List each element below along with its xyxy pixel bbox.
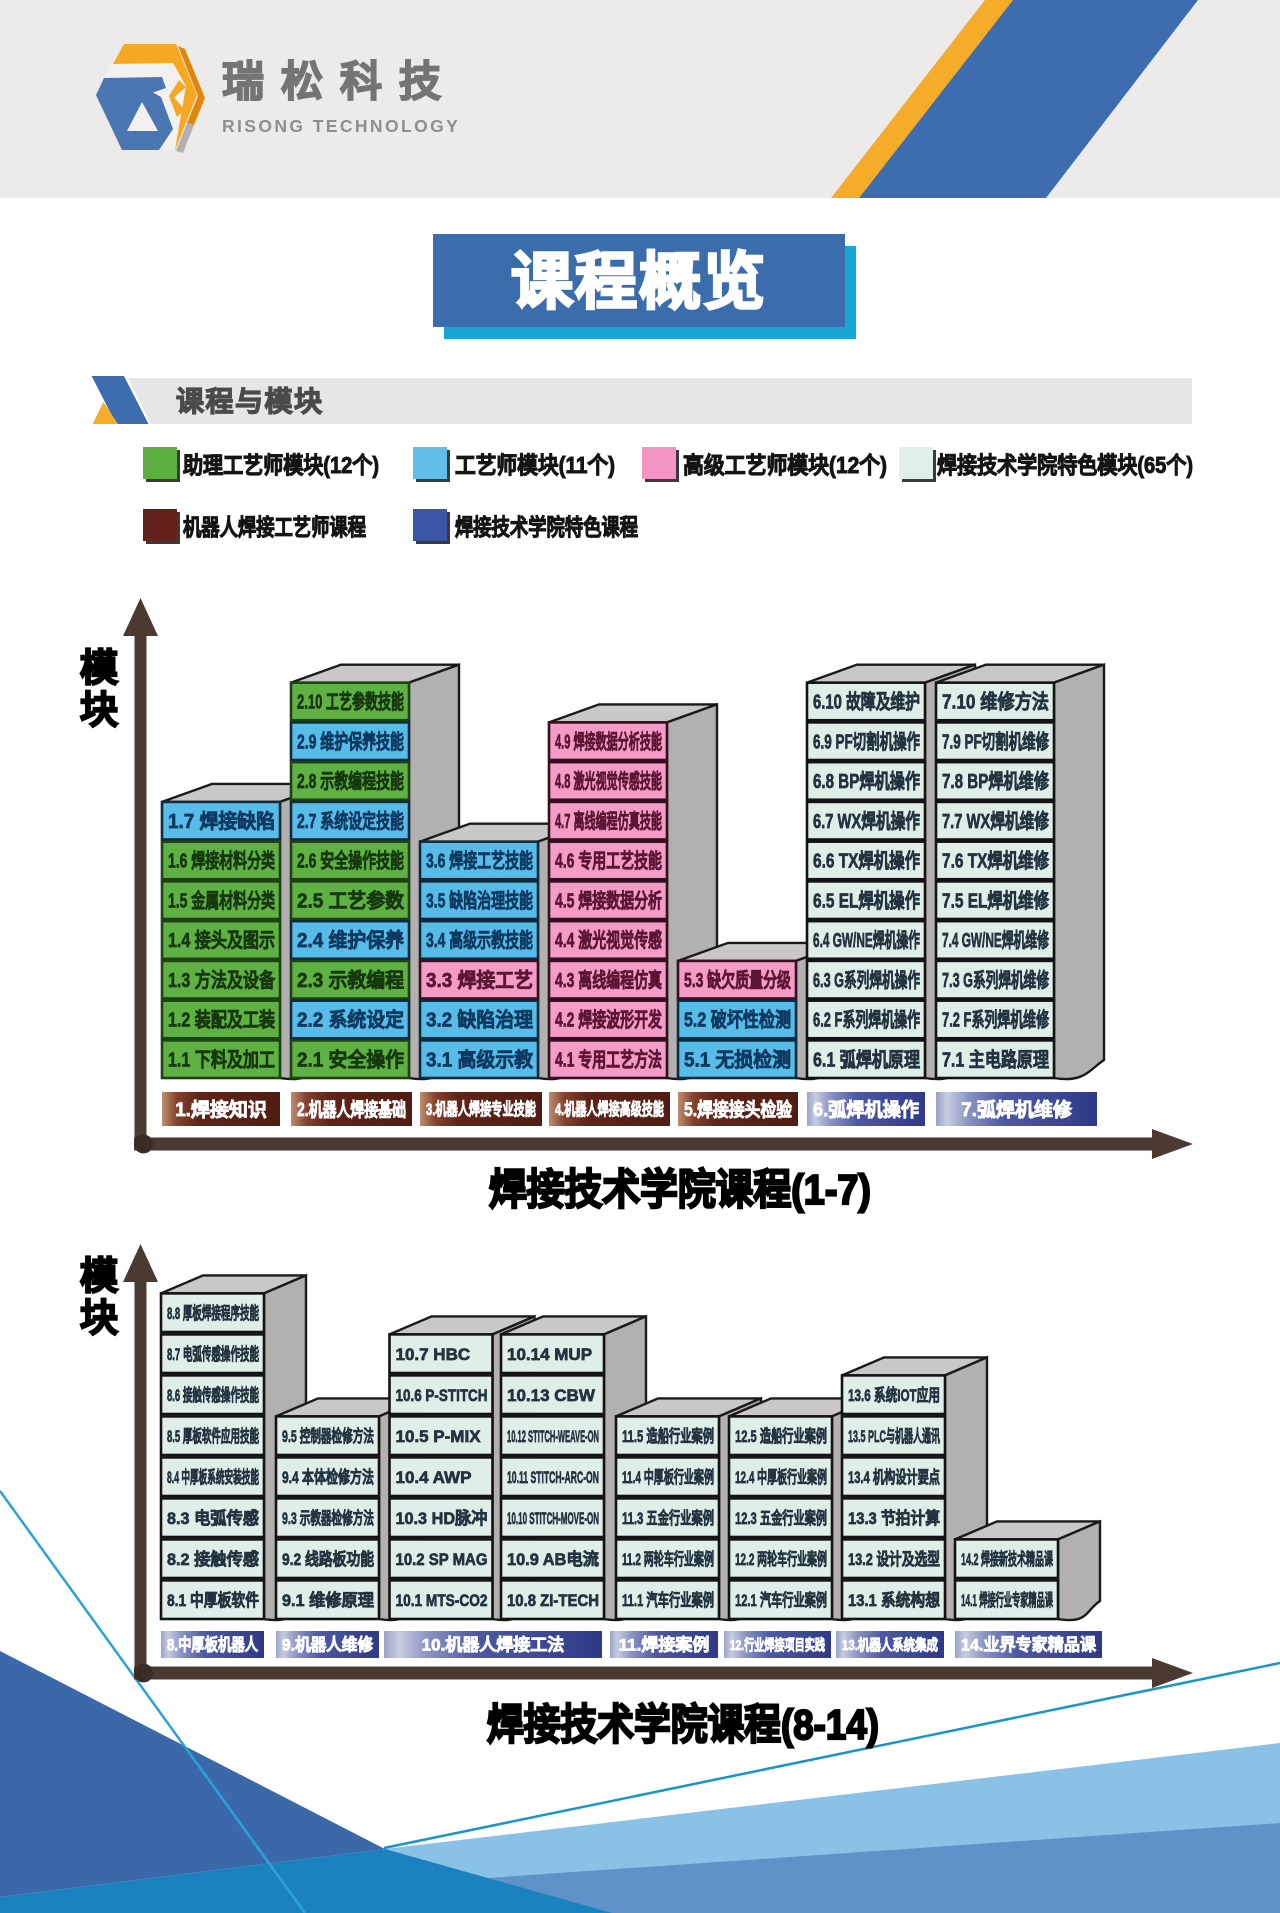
svg-text:9.5 控制器检修方法: 9.5 控制器检修方法 (282, 1426, 374, 1446)
svg-text:课程与模块: 课程与模块 (176, 386, 324, 417)
svg-text:课程概览: 课程概览 (511, 248, 767, 317)
svg-text:9.2 线路板功能: 9.2 线路板功能 (282, 1549, 374, 1569)
svg-text:8.3 电弧传感: 8.3 电弧传感 (167, 1508, 259, 1528)
svg-text:6.5 EL焊机操作: 6.5 EL焊机操作 (813, 888, 920, 912)
svg-text:2.10 工艺参数技能: 2.10 工艺参数技能 (297, 690, 404, 714)
svg-text:10.机器人焊接工法: 10.机器人焊接工法 (422, 1635, 565, 1655)
svg-text:4.8 激光视觉传感技能: 4.8 激光视觉传感技能 (555, 769, 662, 793)
svg-text:11.4 中厚板行业案例: 11.4 中厚板行业案例 (622, 1467, 714, 1487)
svg-text:10.11 STITCH-ARC-ON: 10.11 STITCH-ARC-ON (507, 1468, 599, 1487)
svg-text:6.10 故障及维护: 6.10 故障及维护 (813, 690, 920, 714)
svg-text:13.3 节拍计算: 13.3 节拍计算 (848, 1508, 940, 1528)
svg-text:12.3 五金行业案例: 12.3 五金行业案例 (735, 1508, 827, 1528)
svg-text:6.8 BP焊机操作: 6.8 BP焊机操作 (813, 769, 920, 793)
svg-text:10.10 STITCH-MOVE-ON: 10.10 STITCH-MOVE-ON (507, 1509, 599, 1528)
svg-text:4.1 专用工艺方法: 4.1 专用工艺方法 (555, 1047, 662, 1071)
svg-text:4.机器人焊接高级技能: 4.机器人焊接高级技能 (555, 1099, 664, 1119)
svg-text:3.5 缺陷治理技能: 3.5 缺陷治理技能 (426, 888, 533, 912)
svg-text:1.1 下料及加工: 1.1 下料及加工 (168, 1048, 275, 1071)
svg-text:6.弧焊机操作: 6.弧焊机操作 (813, 1098, 919, 1121)
svg-text:8.7 电弧传感操作技能: 8.7 电弧传感操作技能 (167, 1344, 259, 1364)
svg-text:6.3 G系列焊机操作: 6.3 G系列焊机操作 (813, 968, 920, 992)
svg-text:7.7 WX焊机维修: 7.7 WX焊机维修 (942, 809, 1050, 833)
svg-text:8.8 厚板焊接程序技能: 8.8 厚板焊接程序技能 (167, 1303, 259, 1323)
svg-text:12.4 中厚板行业案例: 12.4 中厚板行业案例 (735, 1467, 827, 1487)
svg-text:10.5 P-MIX: 10.5 P-MIX (396, 1427, 482, 1446)
svg-text:5.1 无损检测: 5.1 无损检测 (684, 1047, 791, 1071)
svg-text:6.4 GW/NE焊机操作: 6.4 GW/NE焊机操作 (813, 928, 920, 952)
svg-text:1.3 方法及设备: 1.3 方法及设备 (168, 968, 276, 992)
svg-text:1.2 装配及工装: 1.2 装配及工装 (168, 1008, 275, 1032)
svg-text:8.4 中厚板系统安装技能: 8.4 中厚板系统安装技能 (167, 1467, 259, 1487)
svg-text:7.9 PF切割机维修: 7.9 PF切割机维修 (942, 729, 1050, 753)
svg-text:块: 块 (80, 1298, 118, 1340)
svg-text:2.1 安全操作: 2.1 安全操作 (297, 1047, 404, 1071)
svg-text:块: 块 (80, 690, 118, 732)
svg-text:1.4 接头及图示: 1.4 接头及图示 (168, 929, 275, 952)
svg-text:10.4 AWP: 10.4 AWP (396, 1468, 472, 1487)
svg-text:2.9 维护保养技能: 2.9 维护保养技能 (297, 729, 404, 753)
svg-text:8.1 中厚板软件: 8.1 中厚板软件 (167, 1590, 259, 1610)
svg-text:7.1 主电路原理: 7.1 主电路原理 (942, 1047, 1049, 1071)
svg-text:6.1 弧焊机原理: 6.1 弧焊机原理 (813, 1047, 920, 1071)
svg-text:11.5 造船行业案例: 11.5 造船行业案例 (622, 1426, 714, 1446)
svg-text:8.6 接触传感操作技能: 8.6 接触传感操作技能 (167, 1385, 259, 1405)
svg-text:8.5 厚板软件应用技能: 8.5 厚板软件应用技能 (167, 1426, 259, 1446)
svg-text:10.2 SP MAG: 10.2 SP MAG (396, 1550, 488, 1569)
svg-text:10.8 ZI-TECH: 10.8 ZI-TECH (507, 1591, 599, 1610)
svg-text:1.6 焊接材料分类: 1.6 焊接材料分类 (168, 849, 275, 873)
svg-text:6.7 WX焊机操作: 6.7 WX焊机操作 (813, 809, 920, 833)
svg-text:工艺师模块(11个): 工艺师模块(11个) (455, 452, 615, 478)
svg-text:4.3 离线编程仿真: 4.3 离线编程仿真 (555, 968, 662, 992)
svg-text:2.2 系统设定: 2.2 系统设定 (297, 1008, 404, 1032)
svg-text:10.3 HD脉冲: 10.3 HD脉冲 (396, 1508, 488, 1528)
svg-text:9.机器人维修: 9.机器人维修 (282, 1635, 374, 1655)
svg-text:5.焊接接头检验: 5.焊接接头检验 (684, 1098, 793, 1121)
svg-text:11.2 两轮车行业案例: 11.2 两轮车行业案例 (622, 1549, 714, 1569)
svg-text:4.6 专用工艺技能: 4.6 专用工艺技能 (555, 849, 662, 873)
svg-text:12.5 造船行业案例: 12.5 造船行业案例 (735, 1426, 827, 1446)
svg-text:模: 模 (80, 648, 118, 690)
svg-text:10.13 CBW: 10.13 CBW (507, 1386, 596, 1405)
svg-text:5.2 破坏性检测: 5.2 破坏性检测 (684, 1008, 791, 1032)
svg-text:2.8 示教编程技能: 2.8 示教编程技能 (297, 769, 404, 793)
svg-text:10.9 AB电流: 10.9 AB电流 (507, 1549, 599, 1569)
svg-text:10.6 P-STITCH: 10.6 P-STITCH (396, 1386, 488, 1405)
svg-text:12.2 两轮车行业案例: 12.2 两轮车行业案例 (735, 1549, 827, 1569)
svg-text:3.6 焊接工艺技能: 3.6 焊接工艺技能 (426, 849, 533, 873)
svg-text:1.焊接知识: 1.焊接知识 (175, 1098, 267, 1121)
svg-text:2.3 示教编程: 2.3 示教编程 (297, 968, 404, 992)
svg-text:14.业界专家精品课: 14.业界专家精品课 (961, 1635, 1097, 1655)
svg-text:焊接技术学院课程(8-14): 焊接技术学院课程(8-14) (487, 1701, 879, 1748)
svg-text:9.1 维修原理: 9.1 维修原理 (282, 1590, 374, 1610)
svg-text:7.6 TX焊机维修: 7.6 TX焊机维修 (942, 849, 1050, 873)
svg-text:14.2 焊接新技术精品课: 14.2 焊接新技术精品课 (961, 1549, 1054, 1569)
svg-text:7.2 F系列焊机维修: 7.2 F系列焊机维修 (942, 1008, 1050, 1032)
svg-text:7.3 G系列焊机维修: 7.3 G系列焊机维修 (942, 968, 1050, 992)
svg-text:2.机器人焊接基础: 2.机器人焊接基础 (297, 1098, 406, 1121)
svg-text:2.4 维护保养: 2.4 维护保养 (297, 928, 404, 952)
svg-text:焊接技术学院特色模块(65个): 焊接技术学院特色模块(65个) (937, 452, 1193, 478)
svg-text:机器人焊接工艺师课程: 机器人焊接工艺师课程 (183, 514, 366, 540)
svg-text:4.4 激光视觉传感: 4.4 激光视觉传感 (555, 928, 662, 952)
svg-text:4.5 焊接数据分析: 4.5 焊接数据分析 (555, 888, 662, 912)
svg-text:10.14 MUP: 10.14 MUP (507, 1345, 592, 1364)
svg-text:3.2 缺陷治理: 3.2 缺陷治理 (426, 1008, 533, 1032)
svg-text:焊接技术学院课程(1-7): 焊接技术学院课程(1-7) (489, 1166, 871, 1213)
svg-text:13.机器人系统集成: 13.机器人系统集成 (842, 1636, 938, 1654)
svg-text:4.9 焊接数据分析技能: 4.9 焊接数据分析技能 (555, 729, 662, 753)
svg-text:6.6 TX焊机操作: 6.6 TX焊机操作 (813, 849, 920, 873)
svg-text:3.3 焊接工艺: 3.3 焊接工艺 (426, 968, 533, 992)
svg-text:4.7 离线编程仿真技能: 4.7 离线编程仿真技能 (555, 809, 662, 833)
svg-text:高级工艺师模块(12个): 高级工艺师模块(12个) (683, 452, 887, 478)
svg-text:9.4 本体检修方法: 9.4 本体检修方法 (282, 1467, 374, 1487)
svg-text:10.12 STITCH-WEAVE-ON: 10.12 STITCH-WEAVE-ON (507, 1427, 599, 1446)
svg-text:13.4 机构设计要点: 13.4 机构设计要点 (848, 1467, 940, 1487)
svg-text:11.焊接案例: 11.焊接案例 (619, 1635, 710, 1655)
svg-text:6.9 PF切割机操作: 6.9 PF切割机操作 (813, 729, 920, 753)
svg-text:助理工艺师模块(12个): 助理工艺师模块(12个) (183, 452, 379, 478)
svg-text:2.5 工艺参数: 2.5 工艺参数 (297, 888, 405, 912)
svg-text:13.5 PLC与机器人通讯: 13.5 PLC与机器人通讯 (848, 1426, 940, 1446)
svg-text:13.1 系统构想: 13.1 系统构想 (848, 1590, 940, 1610)
svg-text:13.6 系统IOT应用: 13.6 系统IOT应用 (848, 1385, 940, 1405)
svg-text:8.2 接触传感: 8.2 接触传感 (167, 1549, 259, 1569)
svg-text:9.3 示教器检修方法: 9.3 示教器检修方法 (282, 1508, 374, 1528)
svg-text:7.10 维修方法: 7.10 维修方法 (942, 690, 1049, 714)
svg-text:12.1 汽车行业案例: 12.1 汽车行业案例 (735, 1590, 827, 1610)
svg-text:10.1 MTS-CO2: 10.1 MTS-CO2 (396, 1591, 488, 1610)
svg-text:7.5 EL焊机维修: 7.5 EL焊机维修 (942, 888, 1050, 912)
svg-text:7.8 BP焊机维修: 7.8 BP焊机维修 (942, 769, 1050, 793)
svg-text:模: 模 (80, 1256, 118, 1298)
svg-text:3.4 高级示教技能: 3.4 高级示教技能 (426, 928, 533, 952)
svg-text:14.1 焊接行业专家精品课: 14.1 焊接行业专家精品课 (961, 1590, 1053, 1610)
svg-text:11.3 五金行业案例: 11.3 五金行业案例 (622, 1508, 714, 1528)
svg-text:2.6 安全操作技能: 2.6 安全操作技能 (297, 849, 404, 873)
svg-text:5.3 缺欠质量分级: 5.3 缺欠质量分级 (684, 968, 791, 992)
svg-text:2.7 系统设定技能: 2.7 系统设定技能 (297, 809, 404, 833)
svg-text:10.7 HBC: 10.7 HBC (396, 1345, 471, 1364)
svg-text:瑞松科技: 瑞松科技 (222, 58, 458, 105)
svg-text:8.中厚板机器人: 8.中厚板机器人 (167, 1635, 259, 1655)
svg-text:3.1 高级示教: 3.1 高级示教 (426, 1047, 534, 1071)
svg-text:焊接技术学院特色课程: 焊接技术学院特色课程 (455, 514, 638, 540)
svg-text:RISONG TECHNOLOGY: RISONG TECHNOLOGY (222, 116, 460, 136)
svg-text:4.2 焊接波形开发: 4.2 焊接波形开发 (555, 1008, 663, 1032)
svg-text:1.7 焊接缺陷: 1.7 焊接缺陷 (168, 809, 275, 833)
svg-text:7.弧焊机维修: 7.弧焊机维修 (961, 1098, 1073, 1121)
svg-text:12.行业焊接项目实践: 12.行业焊接项目实践 (730, 1636, 825, 1654)
svg-text:6.2 F系列焊机操作: 6.2 F系列焊机操作 (813, 1008, 920, 1032)
svg-text:1.5 金属材料分类: 1.5 金属材料分类 (168, 888, 275, 912)
svg-text:3.机器人焊接专业技能: 3.机器人焊接专业技能 (426, 1099, 536, 1119)
svg-text:11.1 汽车行业案例: 11.1 汽车行业案例 (622, 1590, 714, 1610)
svg-text:7.4 GW/NE焊机维修: 7.4 GW/NE焊机维修 (942, 928, 1050, 952)
svg-text:13.2 设计及选型: 13.2 设计及选型 (848, 1549, 940, 1569)
